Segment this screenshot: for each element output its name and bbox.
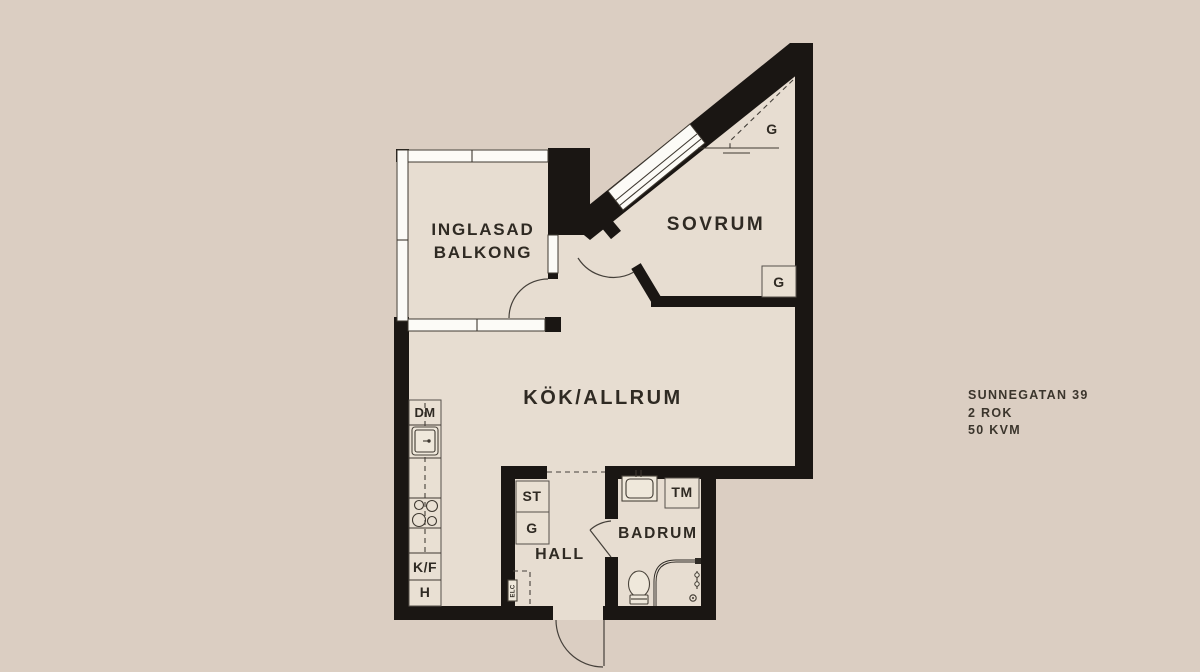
fridge-freezer-label: K/F — [413, 559, 437, 575]
wall-balcony-block — [548, 148, 590, 235]
bathroom-label: BADRUM — [618, 525, 698, 542]
kitchen-counter: DM K/F H — [409, 400, 441, 606]
info-area: 50 KVM — [968, 423, 1021, 437]
kitchen-sink — [412, 427, 438, 455]
shower-mixer-knob-1 — [695, 573, 699, 577]
shower-mixer-knob-2 — [695, 582, 699, 586]
washing-machine: TM — [665, 478, 699, 508]
toilet-bowl — [629, 571, 650, 597]
bedroom-wardrobe-box: G — [762, 266, 796, 297]
wall-right-upper — [795, 43, 813, 479]
dishwasher-label: DM — [414, 405, 435, 420]
hall-closet-g-label: G — [526, 520, 537, 536]
kitchen-living-label: KÖK/ALLRUM — [523, 386, 682, 409]
wall-bedroom-bottom — [651, 296, 797, 307]
info-address: SUNNEGATAN 39 — [968, 388, 1089, 402]
wall-bath-left-upper — [605, 466, 618, 519]
wall-bath-left-lower — [605, 557, 618, 620]
bedroom-label: SOVRUM — [667, 214, 765, 235]
shower-glass-post — [695, 558, 701, 564]
balcony-glazing-left — [397, 150, 408, 321]
toilet — [629, 571, 650, 604]
wardrobe-sloped-label: G — [766, 121, 777, 137]
info-rooms: 2 ROK — [968, 406, 1013, 420]
tall-cabinet-label: H — [420, 584, 431, 600]
entry-door-arc — [556, 620, 603, 667]
hall-closet-st-label: ST — [523, 488, 542, 504]
balcony-right-window — [548, 235, 558, 273]
info-block: SUNNEGATAN 39 2 ROK 50 KVM — [968, 388, 1089, 437]
washing-machine-label: TM — [671, 484, 692, 500]
wardrobe-box-label: G — [773, 274, 784, 290]
hall-label: HALL — [535, 546, 585, 563]
floorplan-drawing: G G DM K/F H ST — [0, 0, 1200, 672]
shower-drain-dot — [692, 597, 694, 599]
balcony-corner-bottomright — [545, 317, 561, 332]
floorplan-canvas: G G DM K/F H ST — [0, 0, 1200, 672]
wall-hall-top-stub — [515, 466, 547, 479]
wall-left — [394, 317, 409, 620]
wall-bottom-left — [394, 606, 553, 620]
electrical-cabinet-label: ELC — [511, 584, 517, 597]
balcony-label-line1: INGLASAD — [431, 220, 534, 239]
wall-bottom-right — [603, 606, 716, 620]
wall-bath-right — [701, 466, 716, 620]
balcony-label-line2: BALKONG — [434, 243, 533, 262]
